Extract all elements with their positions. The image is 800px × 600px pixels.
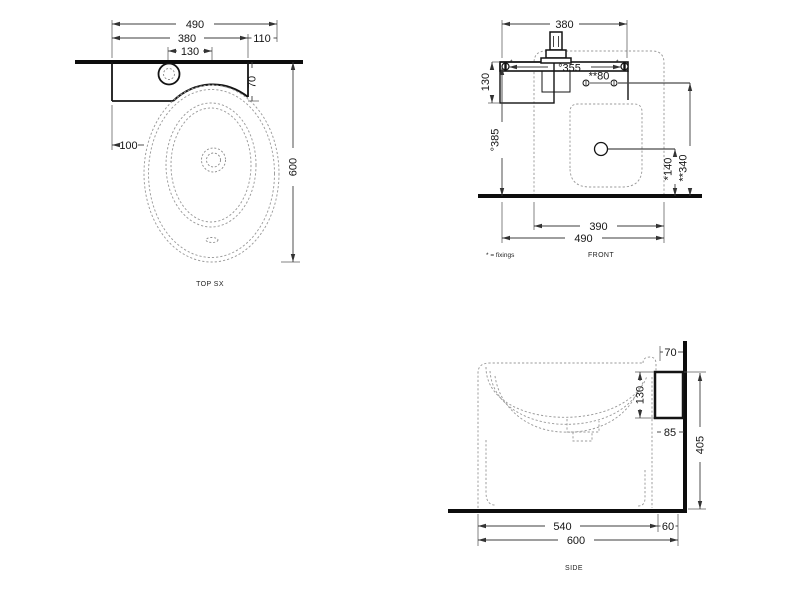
dim-side-130: 130 [635, 372, 647, 418]
dim-label-front-130: 130 [480, 73, 492, 91]
dim-side-540: 540 [478, 521, 658, 533]
dim-top-380: 380 [112, 33, 248, 45]
drain-inner [207, 153, 221, 167]
top-view: 490 380 110 130 70 100 [75, 19, 303, 288]
basin-front-rim-arc [173, 84, 248, 101]
dim-label-side-600: 600 [567, 535, 585, 547]
fixings-note: * = fixings [486, 252, 515, 259]
dim-label-top-70: 70 [247, 76, 259, 88]
dim-front-130: 130 [480, 62, 492, 103]
dim-label-front-385: °385 [490, 129, 502, 152]
dim-label-side-70: 70 [664, 347, 676, 359]
dim-label-side-540: 540 [553, 521, 571, 533]
mounting-bracket-side [655, 372, 683, 418]
dim-front-380: 380 [502, 19, 627, 31]
dim-label-front-390: 390 [589, 221, 607, 233]
dim-label-top-100: 100 [119, 140, 137, 152]
dim-side-85: 85 [657, 427, 684, 439]
dim-label-top-600: 600 [288, 158, 300, 176]
dim-label-side-60: 60 [662, 521, 674, 533]
dim-front-340: **340 [678, 83, 691, 196]
dim-side-600: 600 [478, 535, 678, 547]
drain-outer [202, 148, 226, 172]
dim-top-490: 490 [112, 19, 277, 31]
front-view-extension-lines [488, 20, 664, 243]
dim-side-70: 70 [660, 347, 683, 359]
dim-label-top-110: 110 [253, 33, 271, 45]
technical-drawing-sheet: 490 380 110 130 70 100 [0, 0, 800, 600]
overflow-detail [206, 238, 218, 243]
front-view: * * [478, 19, 702, 259]
dim-side-60: 60 [658, 521, 678, 533]
tap-hole [159, 64, 180, 85]
dim-label-top-130: 130 [181, 46, 199, 58]
dim-label-front-80: **80 [589, 71, 610, 83]
dim-front-80: **80 [589, 71, 610, 84]
dim-label-side-130: 130 [635, 386, 647, 404]
dim-label-front-340: **340 [678, 155, 690, 182]
dim-front-490: 490 [502, 233, 664, 245]
top-view-extension-lines [112, 20, 300, 262]
dim-top-110: 110 [248, 33, 277, 45]
dim-label-side-405: 405 [695, 436, 707, 454]
dim-top-600: 600 [288, 62, 300, 262]
dim-label-top-490: 490 [186, 19, 204, 31]
dim-top-100: 100 [112, 140, 144, 152]
drain-front [595, 143, 608, 156]
dim-label-front-355: °355 [558, 63, 581, 75]
dim-label-side-85: 85 [664, 427, 676, 439]
dim-top-130: 130 [168, 46, 212, 58]
basin-profile-side-dashed [478, 357, 656, 508]
basin-ovals-dashed [144, 85, 279, 262]
dim-label-front-490: 490 [574, 233, 592, 245]
side-view: 70 130 85 405 540 60 [448, 341, 707, 572]
drawing-canvas: 490 380 110 130 70 100 [0, 0, 800, 600]
view-label-front: FRONT [588, 252, 614, 259]
view-label-top: TOP SX [196, 281, 224, 288]
dim-front-390: 390 [534, 221, 664, 233]
dim-label-front-380: 380 [555, 19, 573, 31]
dim-side-405: 405 [695, 373, 707, 509]
view-label-side: SIDE [565, 565, 583, 572]
dim-label-front-140: *140 [663, 158, 675, 181]
faucet [541, 32, 571, 63]
dim-label-top-380: 380 [178, 33, 196, 45]
